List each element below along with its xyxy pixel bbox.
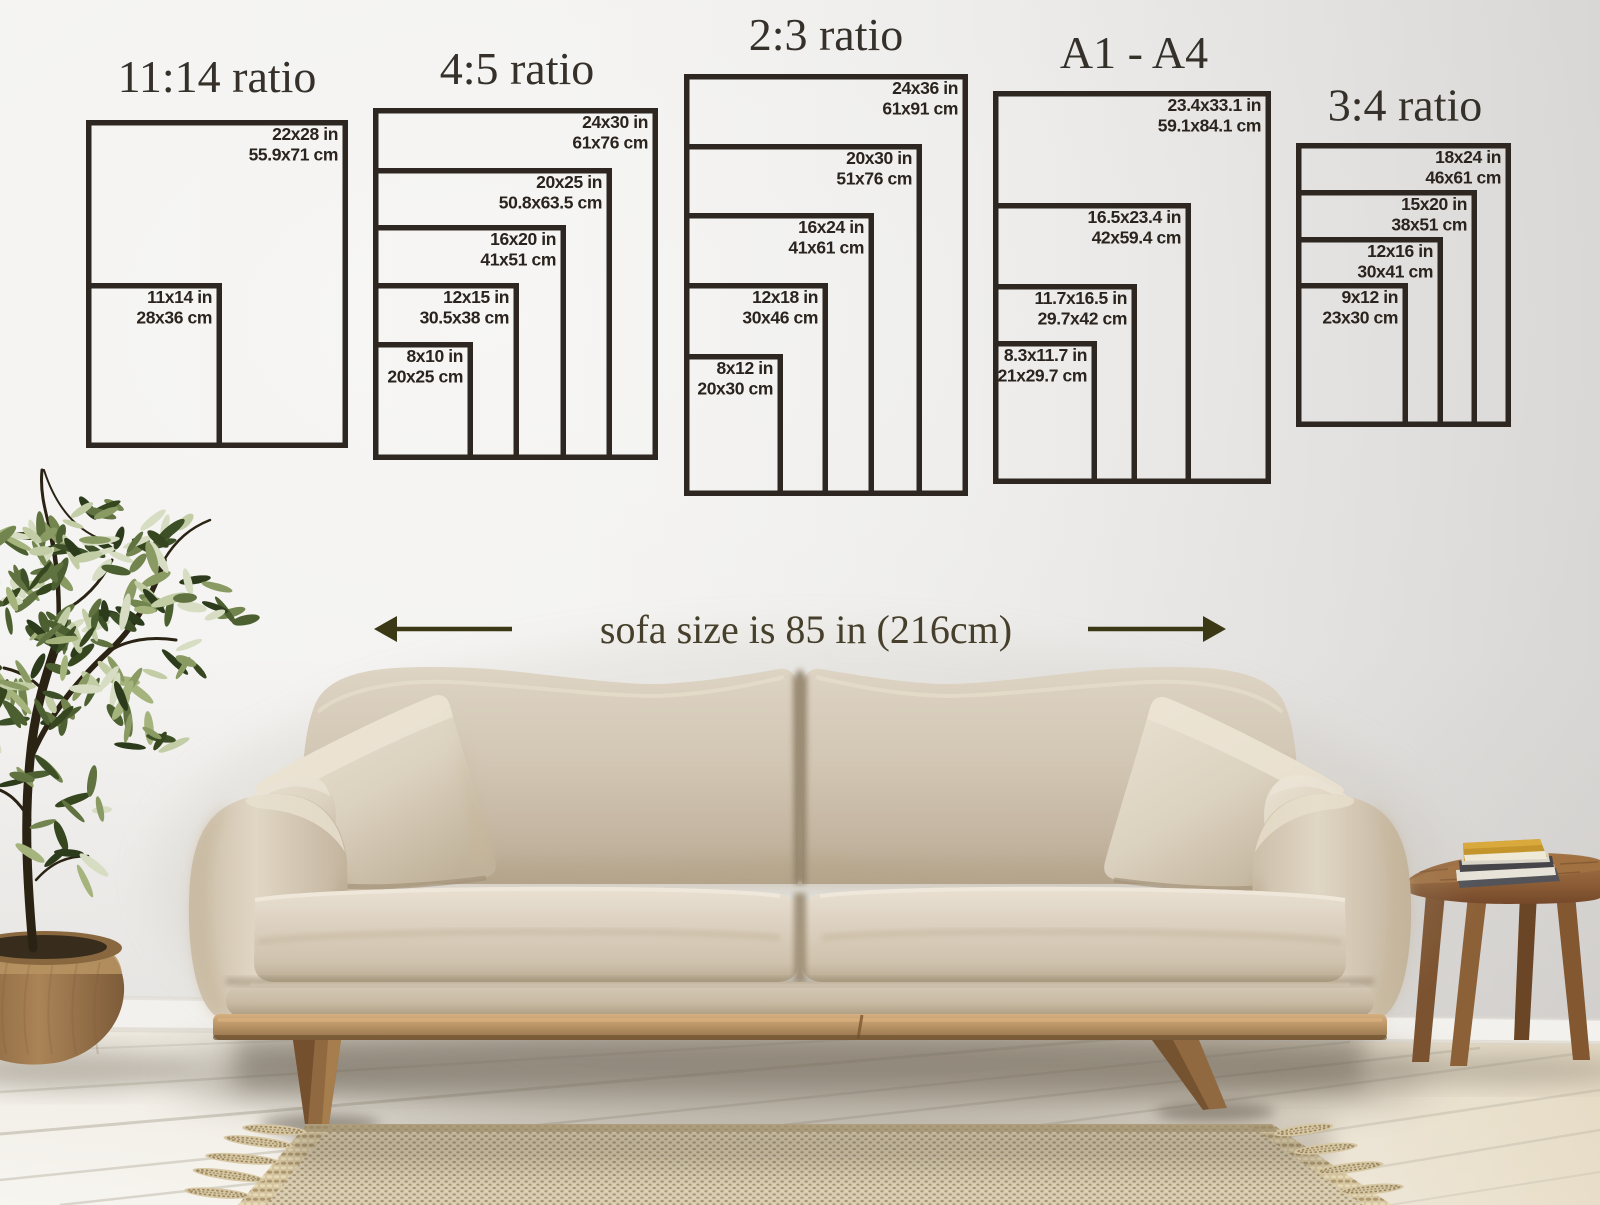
svg-text:30.5x38 cm: 30.5x38 cm: [420, 308, 509, 328]
svg-text:51x76 cm: 51x76 cm: [836, 169, 912, 189]
svg-text:46x61 cm: 46x61 cm: [1425, 168, 1501, 188]
svg-text:12x18 in: 12x18 in: [752, 287, 818, 307]
svg-text:11:14 ratio: 11:14 ratio: [118, 51, 317, 102]
svg-text:12x16 in: 12x16 in: [1367, 241, 1433, 261]
svg-text:29.7x42 cm: 29.7x42 cm: [1038, 309, 1127, 329]
svg-text:9x12 in: 9x12 in: [1341, 287, 1398, 307]
svg-text:sofa size is 85 in (216cm): sofa size is 85 in (216cm): [600, 607, 1012, 652]
svg-text:41x51 cm: 41x51 cm: [480, 250, 556, 270]
svg-text:18x24 in: 18x24 in: [1435, 147, 1501, 167]
svg-text:16.5x23.4 in: 16.5x23.4 in: [1088, 207, 1181, 227]
svg-text:20x30 cm: 20x30 cm: [697, 379, 773, 399]
svg-text:59.1x84.1 cm: 59.1x84.1 cm: [1158, 116, 1261, 136]
svg-text:12x15 in: 12x15 in: [443, 287, 509, 307]
svg-text:A1 - A4: A1 - A4: [1060, 27, 1208, 78]
svg-text:22x28 in: 22x28 in: [272, 124, 338, 144]
svg-text:20x30 in: 20x30 in: [846, 148, 912, 168]
svg-text:15x20 in: 15x20 in: [1401, 194, 1467, 214]
svg-text:24x36 in: 24x36 in: [892, 78, 958, 98]
svg-text:11x14 in: 11x14 in: [147, 287, 212, 307]
svg-text:30x46 cm: 30x46 cm: [742, 308, 818, 328]
svg-text:28x36 cm: 28x36 cm: [136, 308, 212, 328]
svg-text:8x10 in: 8x10 in: [406, 346, 463, 366]
svg-text:23.4x33.1 in: 23.4x33.1 in: [1168, 95, 1261, 115]
svg-text:50.8x63.5 cm: 50.8x63.5 cm: [499, 193, 602, 213]
svg-text:20x25 cm: 20x25 cm: [387, 367, 463, 387]
svg-text:61x76 cm: 61x76 cm: [572, 133, 648, 153]
svg-text:24x30 in: 24x30 in: [582, 112, 648, 132]
svg-text:20x25 in: 20x25 in: [536, 172, 602, 192]
svg-text:42x59.4 cm: 42x59.4 cm: [1092, 228, 1181, 248]
svg-text:8x12 in: 8x12 in: [716, 358, 773, 378]
svg-text:8.3x11.7 in: 8.3x11.7 in: [1004, 345, 1087, 365]
svg-text:11.7x16.5 in: 11.7x16.5 in: [1034, 288, 1127, 308]
svg-text:61x91 cm: 61x91 cm: [882, 99, 958, 119]
svg-text:38x51 cm: 38x51 cm: [1391, 215, 1467, 235]
svg-text:55.9x71 cm: 55.9x71 cm: [249, 145, 338, 165]
svg-text:41x61 cm: 41x61 cm: [788, 238, 864, 258]
svg-text:4:5 ratio: 4:5 ratio: [440, 43, 595, 94]
svg-text:2:3 ratio: 2:3 ratio: [749, 9, 904, 60]
svg-text:16x24 in: 16x24 in: [798, 217, 864, 237]
svg-text:30x41 cm: 30x41 cm: [1357, 262, 1433, 282]
svg-text:23x30 cm: 23x30 cm: [1322, 308, 1398, 328]
svg-text:21x29.7 cm: 21x29.7 cm: [998, 366, 1087, 386]
svg-text:3:4 ratio: 3:4 ratio: [1328, 80, 1483, 131]
svg-text:16x20 in: 16x20 in: [490, 229, 556, 249]
